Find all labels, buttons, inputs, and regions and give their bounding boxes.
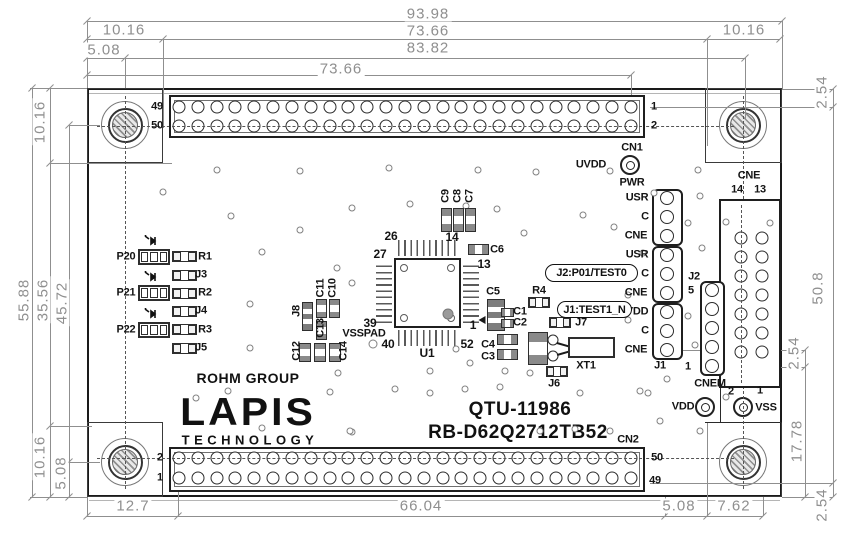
cap-c2 [501, 319, 514, 328]
silkscreen-label: J6 [548, 379, 560, 390]
cn1-pin [304, 101, 317, 114]
via [453, 346, 460, 353]
dimension-line [650, 107, 833, 108]
dimension-line [745, 58, 746, 120]
cnem-pin [705, 302, 719, 316]
u1-pins-left [376, 263, 392, 323]
dimension-label: 2.54 [787, 334, 802, 371]
cn2-pin [624, 472, 637, 485]
silkscreen-label: P21 [117, 288, 136, 299]
dimension-label: 5.08 [54, 454, 69, 491]
cn2-pin [361, 472, 374, 485]
via [347, 428, 354, 435]
via [611, 224, 618, 231]
header-pin [660, 229, 674, 243]
vsspad-hole [369, 340, 378, 349]
header-pin [660, 191, 674, 205]
cn1-pin [624, 101, 637, 114]
silkscreen-label: CNE [625, 231, 648, 242]
cn2-pin [380, 472, 393, 485]
diode-icon [143, 235, 163, 247]
via [407, 201, 414, 208]
dimension-line [125, 58, 126, 88]
silkscreen-label: UVDD [576, 160, 606, 171]
header-pin [660, 267, 674, 281]
cn1-pin [606, 101, 619, 114]
via [657, 418, 664, 425]
cnem-pin [705, 283, 719, 297]
cn2-pin [267, 472, 280, 485]
u1-pin1-dot [443, 309, 454, 320]
silkscreen-label: CNE [738, 171, 761, 182]
u1-corner-pad [447, 264, 455, 272]
cn1-pin [436, 101, 449, 114]
rohm-group-logo-text: ROHM GROUP [197, 370, 300, 386]
cn2-pin [248, 472, 261, 485]
cn2-pin [455, 472, 468, 485]
via [247, 301, 254, 308]
via [685, 220, 692, 227]
header-pin [660, 305, 674, 319]
silkscreen-label: C7 [465, 189, 476, 203]
silkscreen-label: VSSPAD [342, 329, 385, 340]
silkscreen-label: 52 [461, 338, 474, 350]
silkscreen-label: P22 [117, 325, 136, 336]
silkscreen-label: CNE [625, 288, 648, 299]
silkscreen-label: U1 [420, 347, 435, 359]
dimension-line [69, 462, 100, 463]
via [664, 376, 671, 383]
silkscreen-label: C8 [453, 189, 464, 203]
via [723, 219, 730, 226]
via [527, 370, 534, 377]
lapis-logo-text: LAPIS [180, 390, 316, 435]
cap-c10 [329, 299, 340, 318]
led-p21 [138, 285, 170, 301]
via [572, 426, 579, 433]
dimension-line [707, 39, 708, 146]
cap-c11 [316, 299, 327, 318]
u1-corner-pad [400, 264, 408, 272]
cn1-row-centerline [172, 126, 642, 127]
silkscreen-label: J5 [195, 343, 207, 354]
testpoint-uvdd [620, 155, 640, 175]
via [427, 368, 434, 375]
via [502, 368, 509, 375]
silkscreen-label: C3 [481, 352, 495, 363]
via [462, 386, 469, 393]
cn1-pin [229, 101, 242, 114]
cn2-pin [398, 472, 411, 485]
silkscreen-label: C9 [441, 189, 452, 203]
board-inset-line-top [89, 93, 780, 94]
silkscreen-label: C [641, 269, 649, 280]
cn1-pin [398, 101, 411, 114]
cn2-pin [323, 472, 336, 485]
silkscreen-label: PWR [619, 178, 644, 189]
via [645, 390, 652, 397]
dimension-label: 66.04 [398, 499, 445, 514]
resistor-r4 [528, 297, 550, 308]
u1-pin1-arrow [479, 316, 486, 324]
via [533, 169, 540, 176]
silkscreen-label: 2 [728, 387, 734, 398]
via [475, 167, 482, 174]
diode-icon [143, 271, 163, 283]
cne-centerline [741, 205, 742, 383]
cn2-pin [511, 472, 524, 485]
silkscreen-label: J8 [292, 305, 303, 317]
silkscreen-label: 13 [754, 185, 766, 196]
dimension-line [782, 21, 783, 89]
dimension-line [163, 39, 164, 128]
cnem-pin [705, 340, 719, 354]
via [214, 167, 221, 174]
silkscreen-label: R4 [532, 286, 546, 297]
silkscreen-label: 1 [157, 473, 163, 484]
cn1-pin [380, 101, 393, 114]
jumper-j6 [546, 366, 568, 377]
cn2-row-centerline [172, 458, 642, 459]
via [467, 360, 474, 367]
cn2-pin [285, 472, 298, 485]
cn2-pin [229, 472, 242, 485]
cn2-pin [436, 472, 449, 485]
silkscreen-label: R2 [198, 288, 212, 299]
dimension-line [87, 58, 745, 59]
dimension-label: 35.56 [36, 277, 51, 324]
diode-icon [143, 308, 163, 320]
silkscreen-label: VDD [672, 402, 695, 413]
cne-hole [756, 289, 769, 302]
dimension-label: 12.7 [114, 499, 151, 514]
silkscreen-label: P20 [117, 252, 136, 263]
cn1-pin [191, 101, 204, 114]
silkscreen-label: J2 [688, 272, 700, 283]
silkscreen-label: 2 [651, 121, 657, 132]
silkscreen-label: 1 [651, 102, 657, 113]
cn2-pin [304, 472, 317, 485]
silkscreen-label: C10 [328, 278, 339, 298]
silkscreen-label: 49 [649, 476, 661, 487]
via [427, 390, 434, 397]
cn2-pin [587, 472, 600, 485]
via [225, 388, 232, 395]
cap-c8 [453, 208, 464, 232]
u1-pins-right [463, 263, 479, 323]
callout-j2-function: J2:P01/TEST0 [545, 264, 638, 282]
xt1-load-caps [528, 332, 548, 365]
silkscreen-label: C14 [339, 341, 350, 361]
silkscreen-label: 40 [382, 338, 395, 350]
dimension-line [30, 497, 87, 498]
jumper-j7 [549, 317, 571, 328]
cn1-pin [361, 101, 374, 114]
dimension-line [833, 89, 834, 497]
cn1-pin [511, 101, 524, 114]
dimension-label: 7.62 [715, 499, 752, 514]
dimension-line [707, 423, 708, 516]
via [699, 245, 706, 252]
dimension-label: 50.8 [811, 269, 826, 306]
cn1-pin [587, 101, 600, 114]
cn2-pin [493, 472, 506, 485]
silkscreen-label: C [641, 212, 649, 223]
cn1-pin [493, 101, 506, 114]
cn2-pin [210, 472, 223, 485]
callout-j1-function: J1:TEST1_N [557, 301, 632, 318]
header-pin [660, 286, 674, 300]
cap [314, 343, 326, 362]
via [494, 206, 501, 213]
cne-hole [756, 270, 769, 283]
via [580, 212, 587, 219]
silkscreen-label: J3 [195, 270, 207, 281]
led-p20 [138, 249, 170, 265]
board-model-number: RB-D62Q2712TB52 [428, 422, 608, 444]
silkscreen-label: XT1 [576, 361, 596, 372]
silkscreen-label: 2 [157, 453, 163, 464]
silkscreen-label: 14 [731, 185, 743, 196]
silkscreen-label: CNE [625, 345, 648, 356]
cn1-pin [455, 101, 468, 114]
silkscreen-label: USR [626, 250, 649, 261]
silkscreen-label: R3 [198, 325, 212, 336]
cn1-pin [342, 101, 355, 114]
cnem-pin [705, 321, 719, 335]
via [607, 428, 614, 435]
cn2-pin [549, 472, 562, 485]
dimension-label: 10.16 [33, 99, 48, 146]
cn1-pin [173, 101, 186, 114]
cn2-pin [606, 472, 619, 485]
silkscreen-label: 13 [478, 258, 491, 270]
via [228, 213, 235, 220]
dimension-label: 83.82 [405, 41, 452, 56]
cap-c7 [465, 208, 476, 232]
via [247, 345, 254, 352]
technology-logo-text: TECHNOLOGY [182, 433, 319, 448]
cn2-pin [474, 472, 487, 485]
silkscreen-label: 1 [685, 362, 691, 373]
via [349, 280, 356, 287]
silkscreen-label: C4 [481, 340, 495, 351]
cap-c1 [501, 308, 514, 317]
pcb-assembly-drawing: J2:P01/TEST0 J1:TEST1_N ROHM GROUP LAPIS… [0, 0, 850, 534]
cn2-pin [568, 472, 581, 485]
dimension-label: 93.98 [405, 7, 452, 22]
testpoint-vdd [695, 397, 715, 417]
silkscreen-label: 5 [688, 286, 694, 297]
silkscreen-label: CN1 [621, 143, 642, 154]
dimension-line [50, 426, 92, 427]
silkscreen-label: J7 [575, 318, 587, 329]
via [497, 384, 504, 391]
resistor-r1 [172, 251, 197, 262]
dimension-label: 17.78 [790, 418, 805, 465]
via [297, 168, 304, 175]
cn1-pin [530, 101, 543, 114]
cn1-pin [285, 101, 298, 114]
cn1-pin [248, 101, 261, 114]
via [392, 386, 399, 393]
cne-hole [756, 346, 769, 359]
via [160, 189, 167, 196]
cn2-pin [173, 472, 186, 485]
silkscreen-label: USR [626, 193, 649, 204]
cap-c6 [468, 244, 489, 255]
via [193, 395, 200, 402]
silkscreen-label: J4 [195, 306, 207, 317]
dimension-label: 45.72 [55, 280, 70, 327]
header-pin [660, 210, 674, 224]
xt1-pad [548, 335, 559, 346]
cne-hole [756, 327, 769, 340]
cn1-pin [417, 101, 430, 114]
u1-pins-bottom [398, 330, 457, 346]
silkscreen-label: C12 [292, 341, 303, 361]
via [651, 190, 658, 197]
cn2-pin [342, 472, 355, 485]
via [685, 313, 692, 320]
via [521, 230, 528, 237]
silkscreen-label: C11 [316, 279, 327, 298]
via [537, 428, 544, 435]
silkscreen-label: 50 [151, 121, 163, 132]
jumper-j5 [172, 343, 197, 354]
silkscreen-label: J1 [654, 361, 666, 372]
crystal-xt1 [568, 337, 615, 358]
via [259, 249, 266, 256]
via [692, 342, 699, 349]
via [767, 220, 774, 227]
led-p22 [138, 322, 170, 338]
cnem-pin [705, 359, 719, 373]
header-pin [660, 343, 674, 357]
resistor-r2 [172, 288, 197, 299]
cne-hole [756, 251, 769, 264]
via [349, 205, 356, 212]
silkscreen-label: CNEM [694, 379, 726, 390]
dimension-label: 10.16 [33, 434, 48, 481]
cne-hole [756, 232, 769, 245]
board-part-number: QTU-11986 [469, 399, 572, 421]
cn1-pin [323, 101, 336, 114]
cn1-pin [210, 101, 223, 114]
dimension-label: 10.16 [721, 23, 768, 38]
jumper-j8 [302, 302, 313, 331]
header-pin [660, 248, 674, 262]
silkscreen-label: R1 [198, 252, 212, 263]
u1-corner-pad [400, 314, 408, 322]
header-pin [660, 324, 674, 338]
cap-c3 [497, 349, 518, 360]
via [607, 168, 614, 175]
xt1-pad [548, 351, 559, 362]
via [297, 227, 304, 234]
dimension-label: 55.88 [17, 277, 32, 324]
silkscreen-label: C [641, 326, 649, 337]
cn2-pin [191, 472, 204, 485]
dimension-line [69, 125, 100, 126]
resistor-r3 [172, 324, 197, 335]
via [259, 425, 266, 432]
silkscreen-label: 27 [374, 248, 387, 260]
silkscreen-label: VSS [755, 403, 776, 414]
cne-hole [756, 308, 769, 321]
jumper-j4 [172, 306, 197, 317]
dimension-label: 73.66 [405, 24, 452, 39]
connector-cne [719, 199, 781, 388]
cn2-pin [417, 472, 430, 485]
silkscreen-label: 26 [385, 230, 398, 242]
silkscreen-label: 1 [470, 319, 476, 331]
via [577, 390, 584, 397]
silkscreen-label: C13 [316, 318, 327, 338]
cn2-pin [530, 472, 543, 485]
dimension-label: 2.54 [815, 73, 830, 110]
jumper-j3 [172, 270, 197, 281]
dimension-label: 2.54 [815, 486, 830, 523]
dimension-label: 5.08 [85, 43, 122, 58]
cap-c9 [441, 208, 452, 232]
dimension-label: 10.16 [101, 23, 148, 38]
dimension-label: 73.66 [318, 62, 365, 77]
cn1-pin [549, 101, 562, 114]
silkscreen-label: C2 [513, 318, 527, 329]
dimension-line [30, 88, 87, 89]
silkscreen-label: 1 [757, 386, 763, 397]
silkscreen-label: CN2 [617, 435, 638, 446]
via [637, 388, 644, 395]
via [386, 165, 393, 172]
cn1-pin [267, 101, 280, 114]
dimension-label: 5.08 [660, 499, 697, 514]
via [697, 193, 704, 200]
via [335, 370, 342, 377]
silkscreen-label: 50 [651, 453, 663, 464]
cn1-pin [474, 101, 487, 114]
via [334, 265, 341, 272]
silkscreen-label: C6 [490, 245, 504, 256]
silkscreen-label: C5 [486, 287, 500, 298]
silkscreen-label: 14 [446, 231, 459, 243]
cn1-pin [568, 101, 581, 114]
cap-c4 [497, 334, 518, 345]
via [695, 167, 702, 174]
silkscreen-label: 49 [151, 102, 163, 113]
via [697, 428, 704, 435]
via [327, 389, 334, 396]
board-notch-line-v [720, 388, 721, 422]
